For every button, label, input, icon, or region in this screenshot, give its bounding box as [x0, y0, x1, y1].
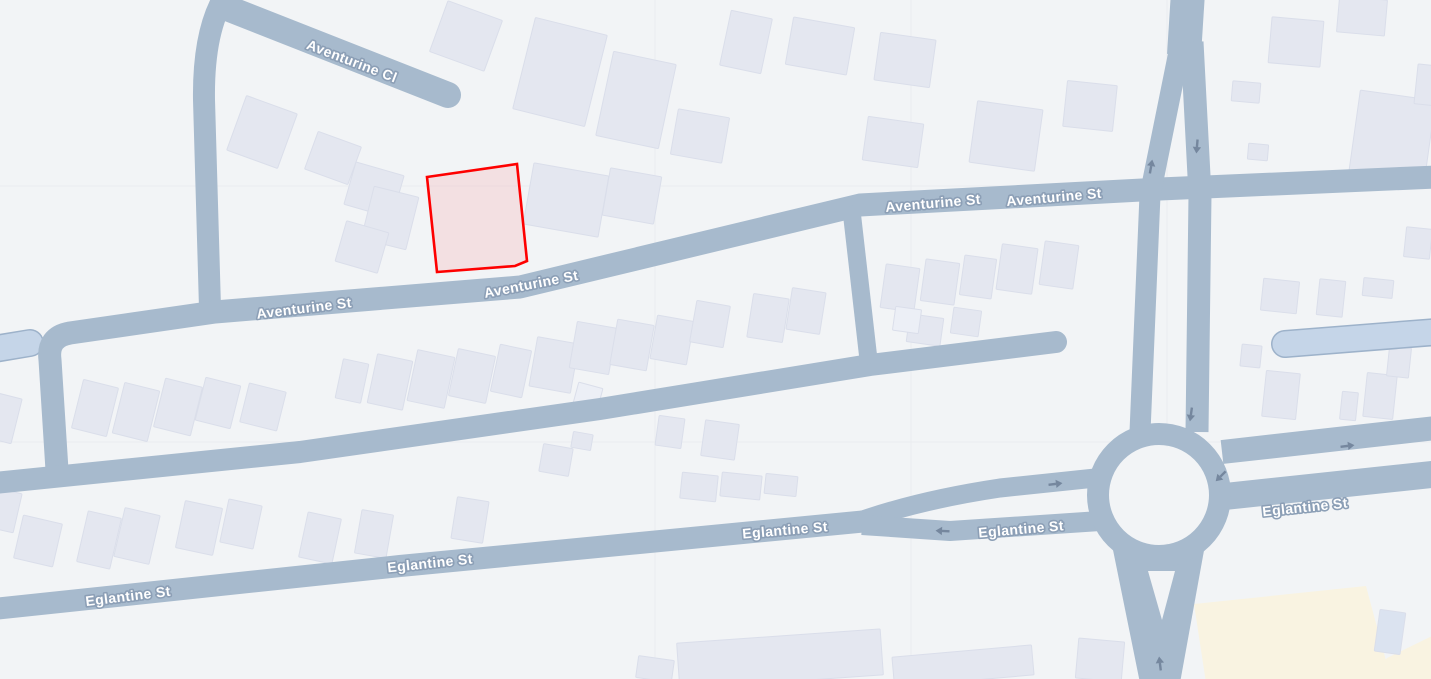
building: [1240, 344, 1262, 368]
building: [680, 472, 719, 502]
building: [1316, 279, 1346, 318]
building: [1231, 81, 1261, 103]
building: [602, 168, 662, 224]
building: [1247, 143, 1268, 161]
building: [670, 109, 729, 163]
building: [920, 259, 960, 305]
arrow-shaft: [1160, 663, 1161, 670]
building: [880, 264, 920, 312]
building: [747, 293, 789, 342]
building: [785, 17, 854, 75]
road-segment: [0, 343, 30, 349]
building: [539, 444, 573, 477]
building: [1075, 638, 1124, 679]
road-segment: [1192, 42, 1200, 432]
map-canvas[interactable]: Aventurine ClAventurine StAventurine StA…: [0, 0, 1431, 679]
building: [354, 510, 393, 559]
building: [1063, 81, 1118, 132]
building: [655, 415, 685, 448]
building: [874, 32, 936, 87]
building: [892, 306, 921, 333]
building: [1362, 277, 1394, 298]
building: [969, 101, 1043, 172]
arrow-shaft: [1191, 408, 1192, 415]
building: [1260, 278, 1299, 314]
building: [996, 244, 1038, 295]
building: [701, 420, 740, 460]
selected-parcel-polygon[interactable]: [427, 164, 527, 272]
building: [1386, 346, 1411, 378]
building: [959, 255, 996, 299]
building: [1404, 227, 1431, 260]
building: [786, 288, 826, 335]
building: [523, 163, 609, 237]
building: [451, 497, 489, 543]
building: [571, 431, 593, 450]
building: [1039, 241, 1079, 289]
arrow-shaft: [1197, 140, 1198, 147]
building: [610, 319, 654, 371]
building: [1262, 370, 1301, 419]
building: [1374, 609, 1406, 654]
building: [862, 116, 924, 167]
building: [764, 473, 798, 496]
building: [1363, 373, 1397, 420]
building: [1340, 391, 1359, 421]
building: [1268, 17, 1324, 67]
building: [950, 307, 981, 337]
roundabout-island: [1110, 446, 1208, 544]
building: [650, 315, 694, 365]
arrow-shaft: [1049, 484, 1056, 485]
arrow-shaft: [1150, 166, 1151, 173]
building: [1337, 0, 1388, 36]
building: [569, 321, 617, 374]
building: [720, 472, 762, 500]
road-segment: [1285, 332, 1431, 344]
arrow-shaft: [1341, 446, 1348, 447]
map-viewport: Aventurine ClAventurine StAventurine StA…: [0, 0, 1431, 679]
building: [690, 300, 731, 347]
